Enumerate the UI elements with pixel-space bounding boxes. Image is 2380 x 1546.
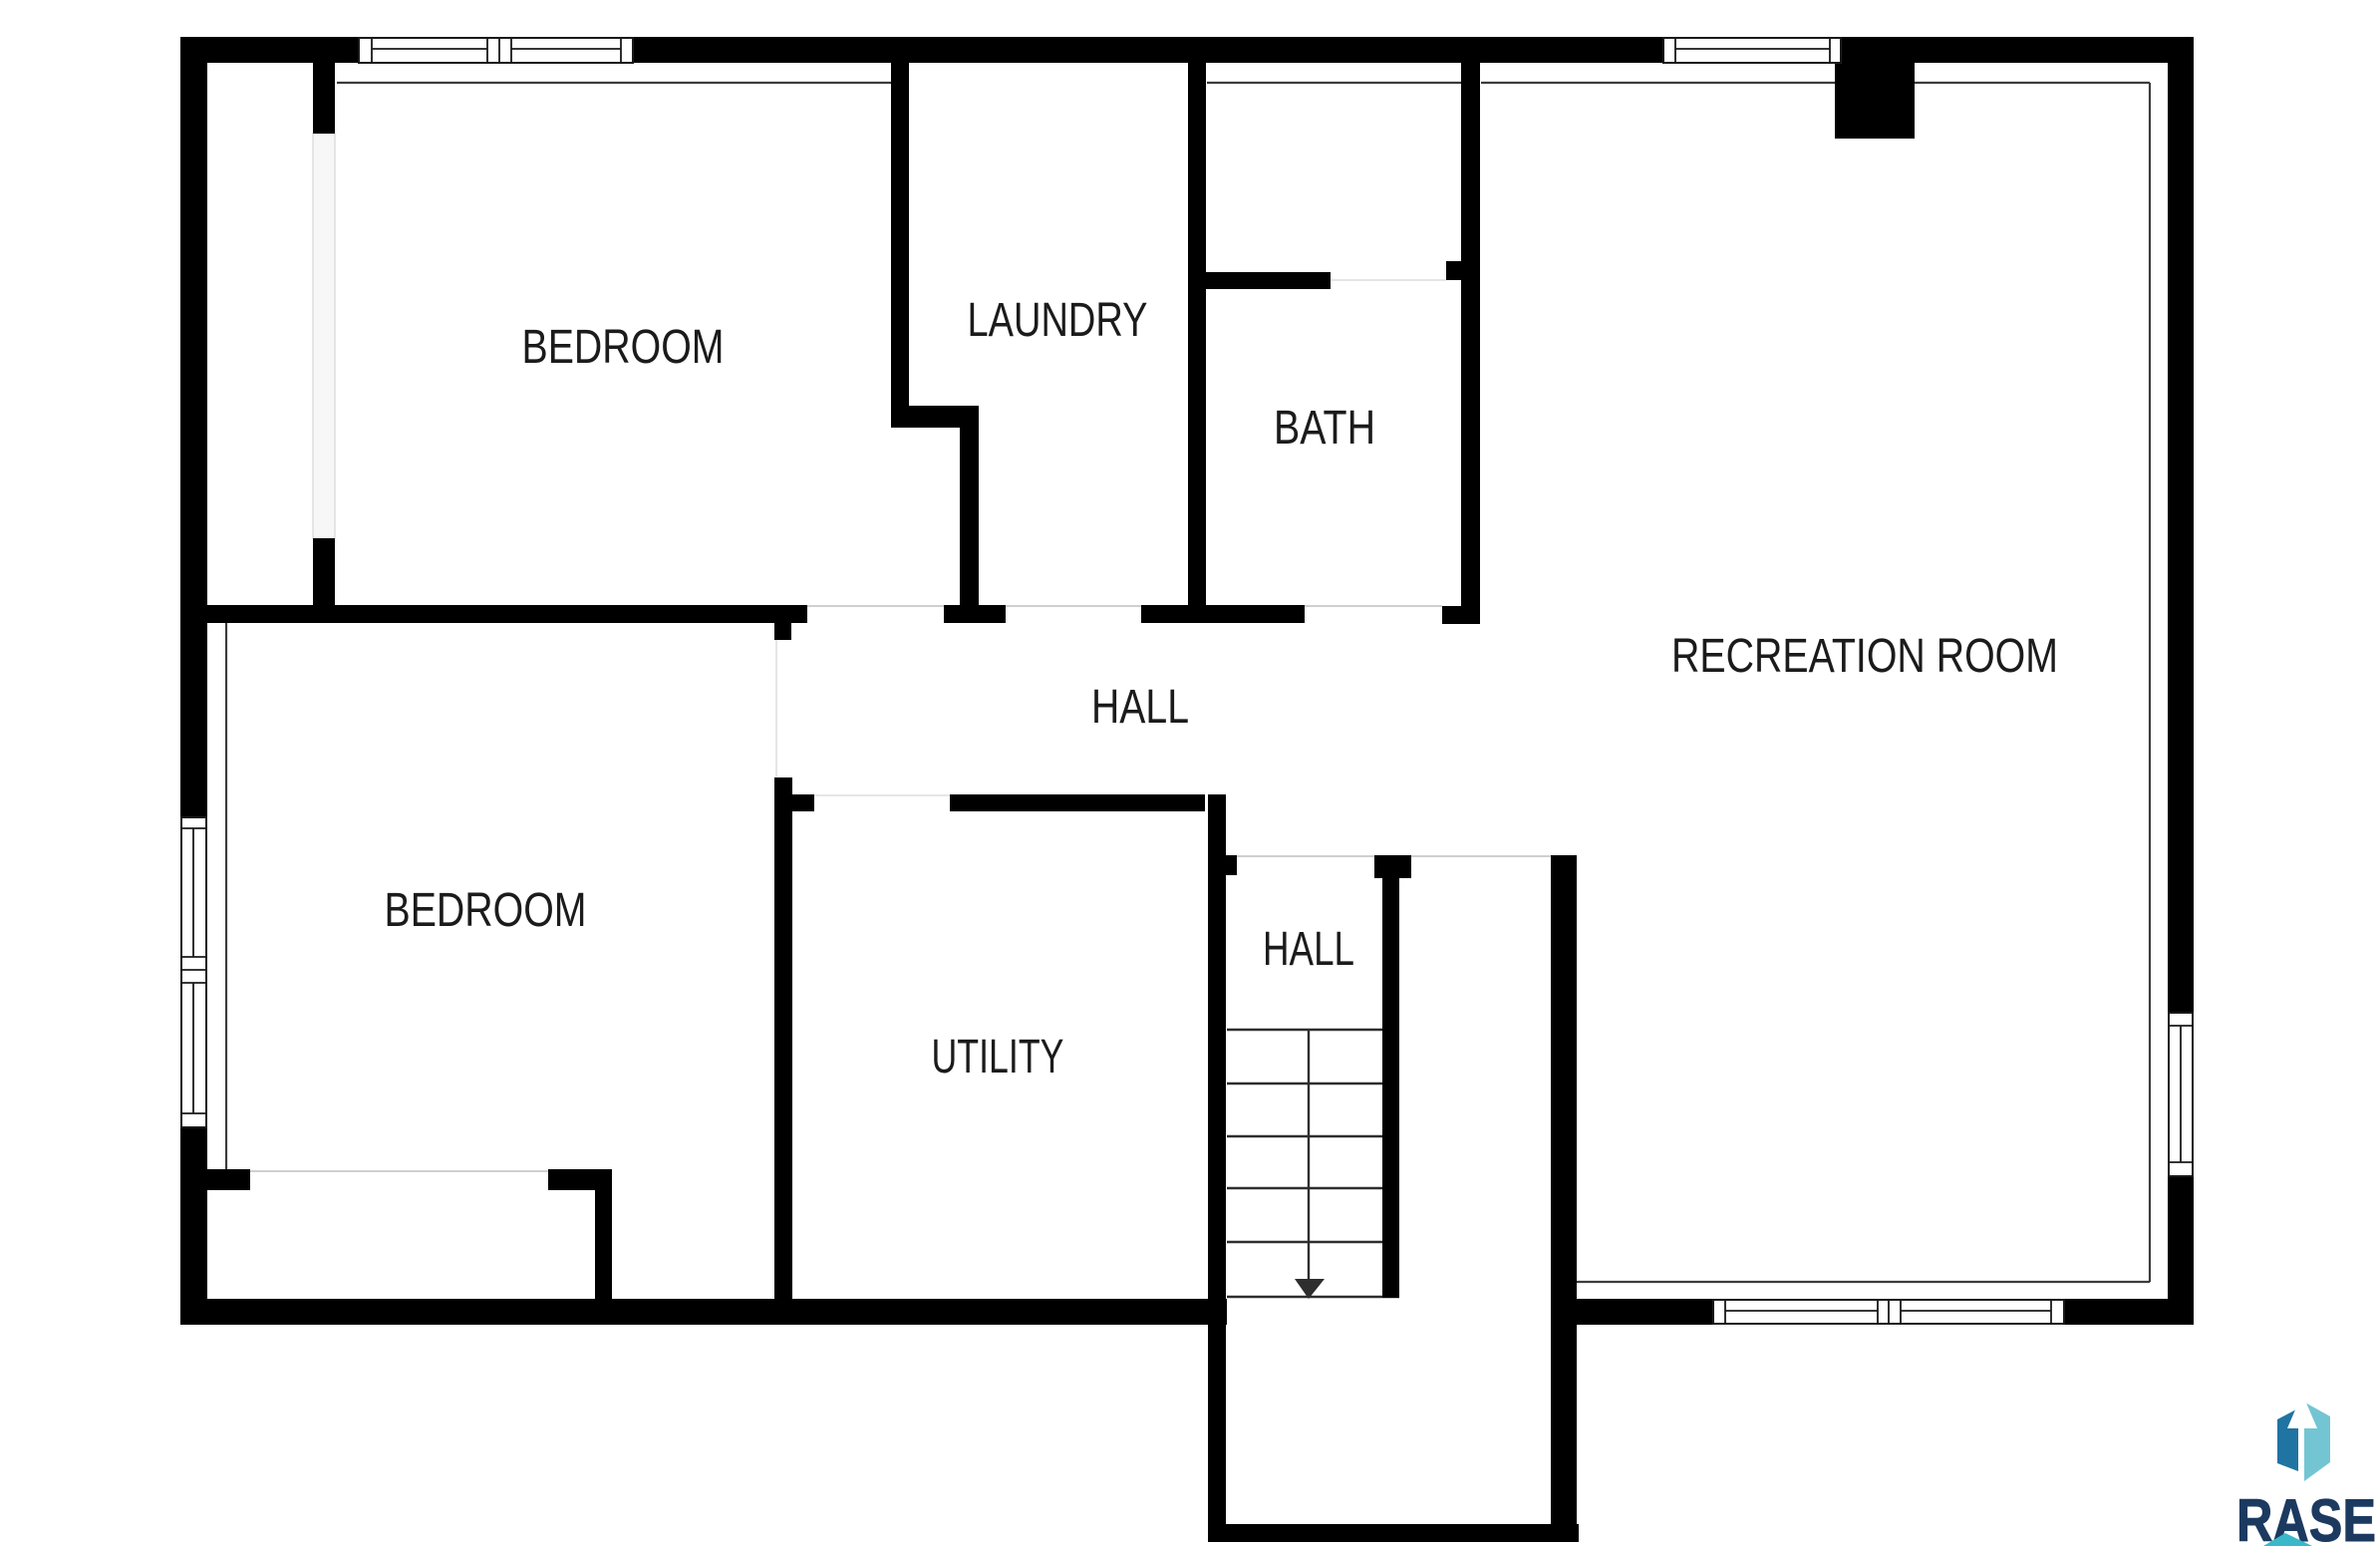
svg-text:UTILITY: UTILITY [932, 1031, 1064, 1083]
svg-text:HALL: HALL [1263, 923, 1354, 976]
svg-text:BATH: BATH [1274, 402, 1375, 455]
svg-text:RECREATION ROOM: RECREATION ROOM [1671, 630, 2058, 683]
svg-text:RASE: RASE [2236, 1487, 2376, 1546]
svg-text:HALL: HALL [1091, 681, 1189, 734]
svg-text:BEDROOM: BEDROOM [385, 884, 587, 937]
svg-text:LAUNDRY: LAUNDRY [968, 294, 1148, 347]
svg-text:BEDROOM: BEDROOM [522, 321, 725, 374]
